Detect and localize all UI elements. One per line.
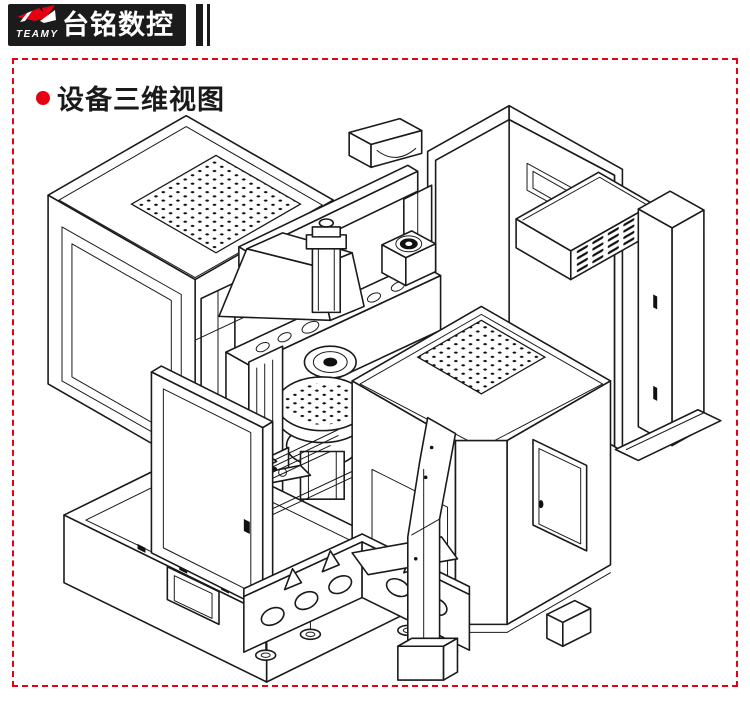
brand-emblem-icon: TEAMY <box>14 4 60 46</box>
foot-block <box>398 638 458 680</box>
header-divider-bar-thin <box>207 4 210 46</box>
brand-en-text: TEAMY <box>16 29 59 40</box>
pneumatic-cylinder <box>306 219 346 312</box>
brand-logo[interactable]: TEAMY 台铭数控 <box>8 4 186 46</box>
door-handle <box>538 500 543 508</box>
handle-slot <box>653 294 657 309</box>
section-title: 设备三维视图 <box>57 78 225 117</box>
spindle-pulley <box>304 346 356 378</box>
machine-3d-figure <box>14 60 736 685</box>
header-divider-bar-thick <box>196 4 203 46</box>
content-panel: 设备三维视图 <box>12 58 738 687</box>
red-bullet-icon <box>36 91 50 105</box>
foot-block-2 <box>547 601 591 647</box>
section-heading: 设备三维视图 <box>36 78 225 117</box>
handle-slot <box>653 386 657 401</box>
brand-zh-text: 台铭数控 <box>62 4 174 46</box>
page-header: TEAMY 台铭数控 <box>0 0 750 52</box>
